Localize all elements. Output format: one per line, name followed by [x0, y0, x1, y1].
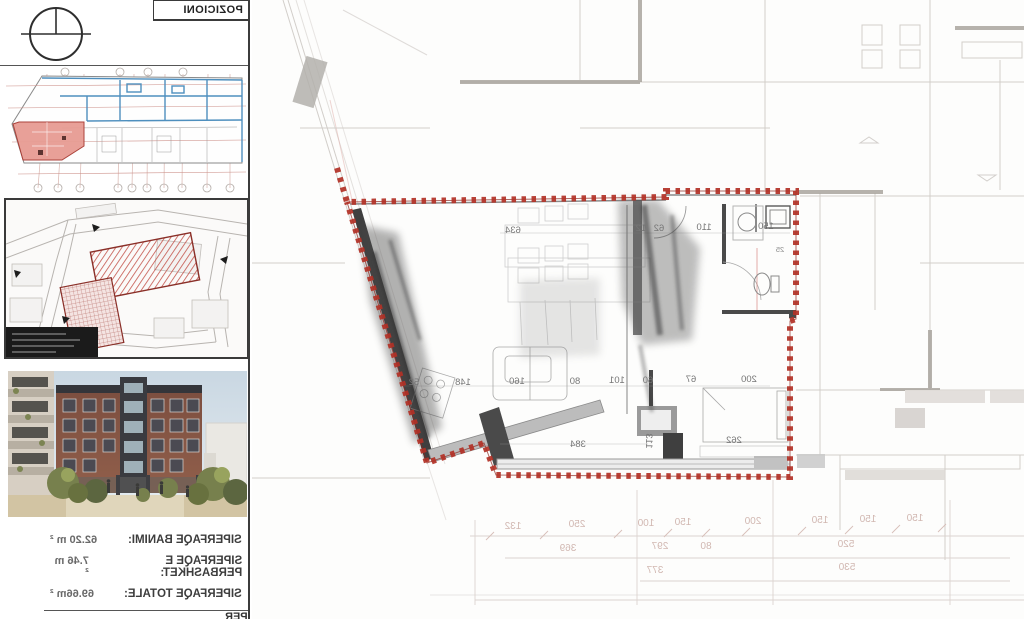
site-plan: [6, 200, 247, 357]
svg-text:634: 634: [505, 225, 521, 236]
svg-text:12: 12: [636, 223, 647, 234]
main-floor-plan: 634 12 62 110 150 25 52 148 160 80 101 6…: [252, 0, 1024, 619]
svg-text:262: 262: [726, 435, 742, 446]
north-arrow-icon: [18, 3, 96, 65]
svg-text:67: 67: [686, 374, 697, 385]
presentation-sheet: POZICIONI: [0, 0, 1024, 619]
svg-text:150: 150: [758, 221, 774, 232]
svg-text:132: 132: [504, 521, 521, 532]
svg-text:200: 200: [741, 374, 757, 385]
svg-text:150: 150: [811, 515, 828, 526]
svg-text:62: 62: [654, 223, 665, 234]
grid-dimension-lines: [470, 480, 1024, 605]
svg-text:297: 297: [651, 541, 668, 552]
svg-text:250: 250: [568, 519, 585, 530]
svg-text:60: 60: [643, 375, 654, 386]
area-label: SIPERFAQE TOTALE:: [124, 588, 242, 600]
svg-text:384: 384: [570, 439, 586, 450]
svg-text:100: 100: [637, 518, 654, 529]
grid-dimensions: 132 250 100 150 200 150 150 150 369 297 …: [504, 513, 923, 576]
svg-text:530: 530: [838, 562, 855, 573]
area-label: SIPERFAQE E PERBASHKET:: [89, 555, 242, 579]
svg-text:150: 150: [906, 513, 923, 524]
svg-text:369: 369: [559, 543, 576, 554]
floor-overview-plan: [2, 66, 248, 196]
building-render: [8, 371, 247, 517]
svg-text:150: 150: [859, 514, 876, 525]
svg-text:150: 150: [674, 517, 691, 528]
svg-text:377: 377: [646, 565, 663, 576]
sidebar-right-border: [248, 0, 250, 619]
area-row-totale: 69.66m ² SIPERFAQE TOTALE:: [0, 584, 248, 604]
svg-text:52: 52: [409, 377, 420, 388]
svg-text:101: 101: [609, 375, 625, 386]
footer-rule: [44, 610, 248, 611]
area-value: 62.20 m ²: [50, 534, 97, 546]
footer-label: PER: [225, 611, 248, 619]
svg-text:80: 80: [570, 376, 581, 387]
area-row-banimi: 62.20 m ² SIPERFAQE BANIMI:: [0, 530, 248, 550]
area-value: 69.66m ²: [50, 588, 94, 600]
sheet-title: POZICIONI: [183, 4, 243, 16]
svg-text:80: 80: [700, 541, 712, 552]
svg-text:148: 148: [455, 377, 471, 388]
svg-text:160: 160: [509, 376, 525, 387]
svg-text:200: 200: [744, 516, 761, 527]
area-value: 7.46 m ²: [50, 555, 89, 579]
svg-text:25: 25: [776, 245, 784, 254]
site-plan-legend: [6, 327, 98, 357]
sheet-title-cell: POZICIONI: [153, 0, 248, 21]
area-label: SIPERFAQE BANIMI:: [128, 534, 242, 546]
svg-text:520: 520: [837, 539, 854, 550]
svg-text:113: 113: [643, 433, 654, 448]
sidebar: POZICIONI: [0, 0, 252, 619]
svg-text:110: 110: [696, 222, 711, 233]
area-row-perbashket: 7.46 m ² SIPERFAQE E PERBASHKET:: [0, 557, 248, 577]
